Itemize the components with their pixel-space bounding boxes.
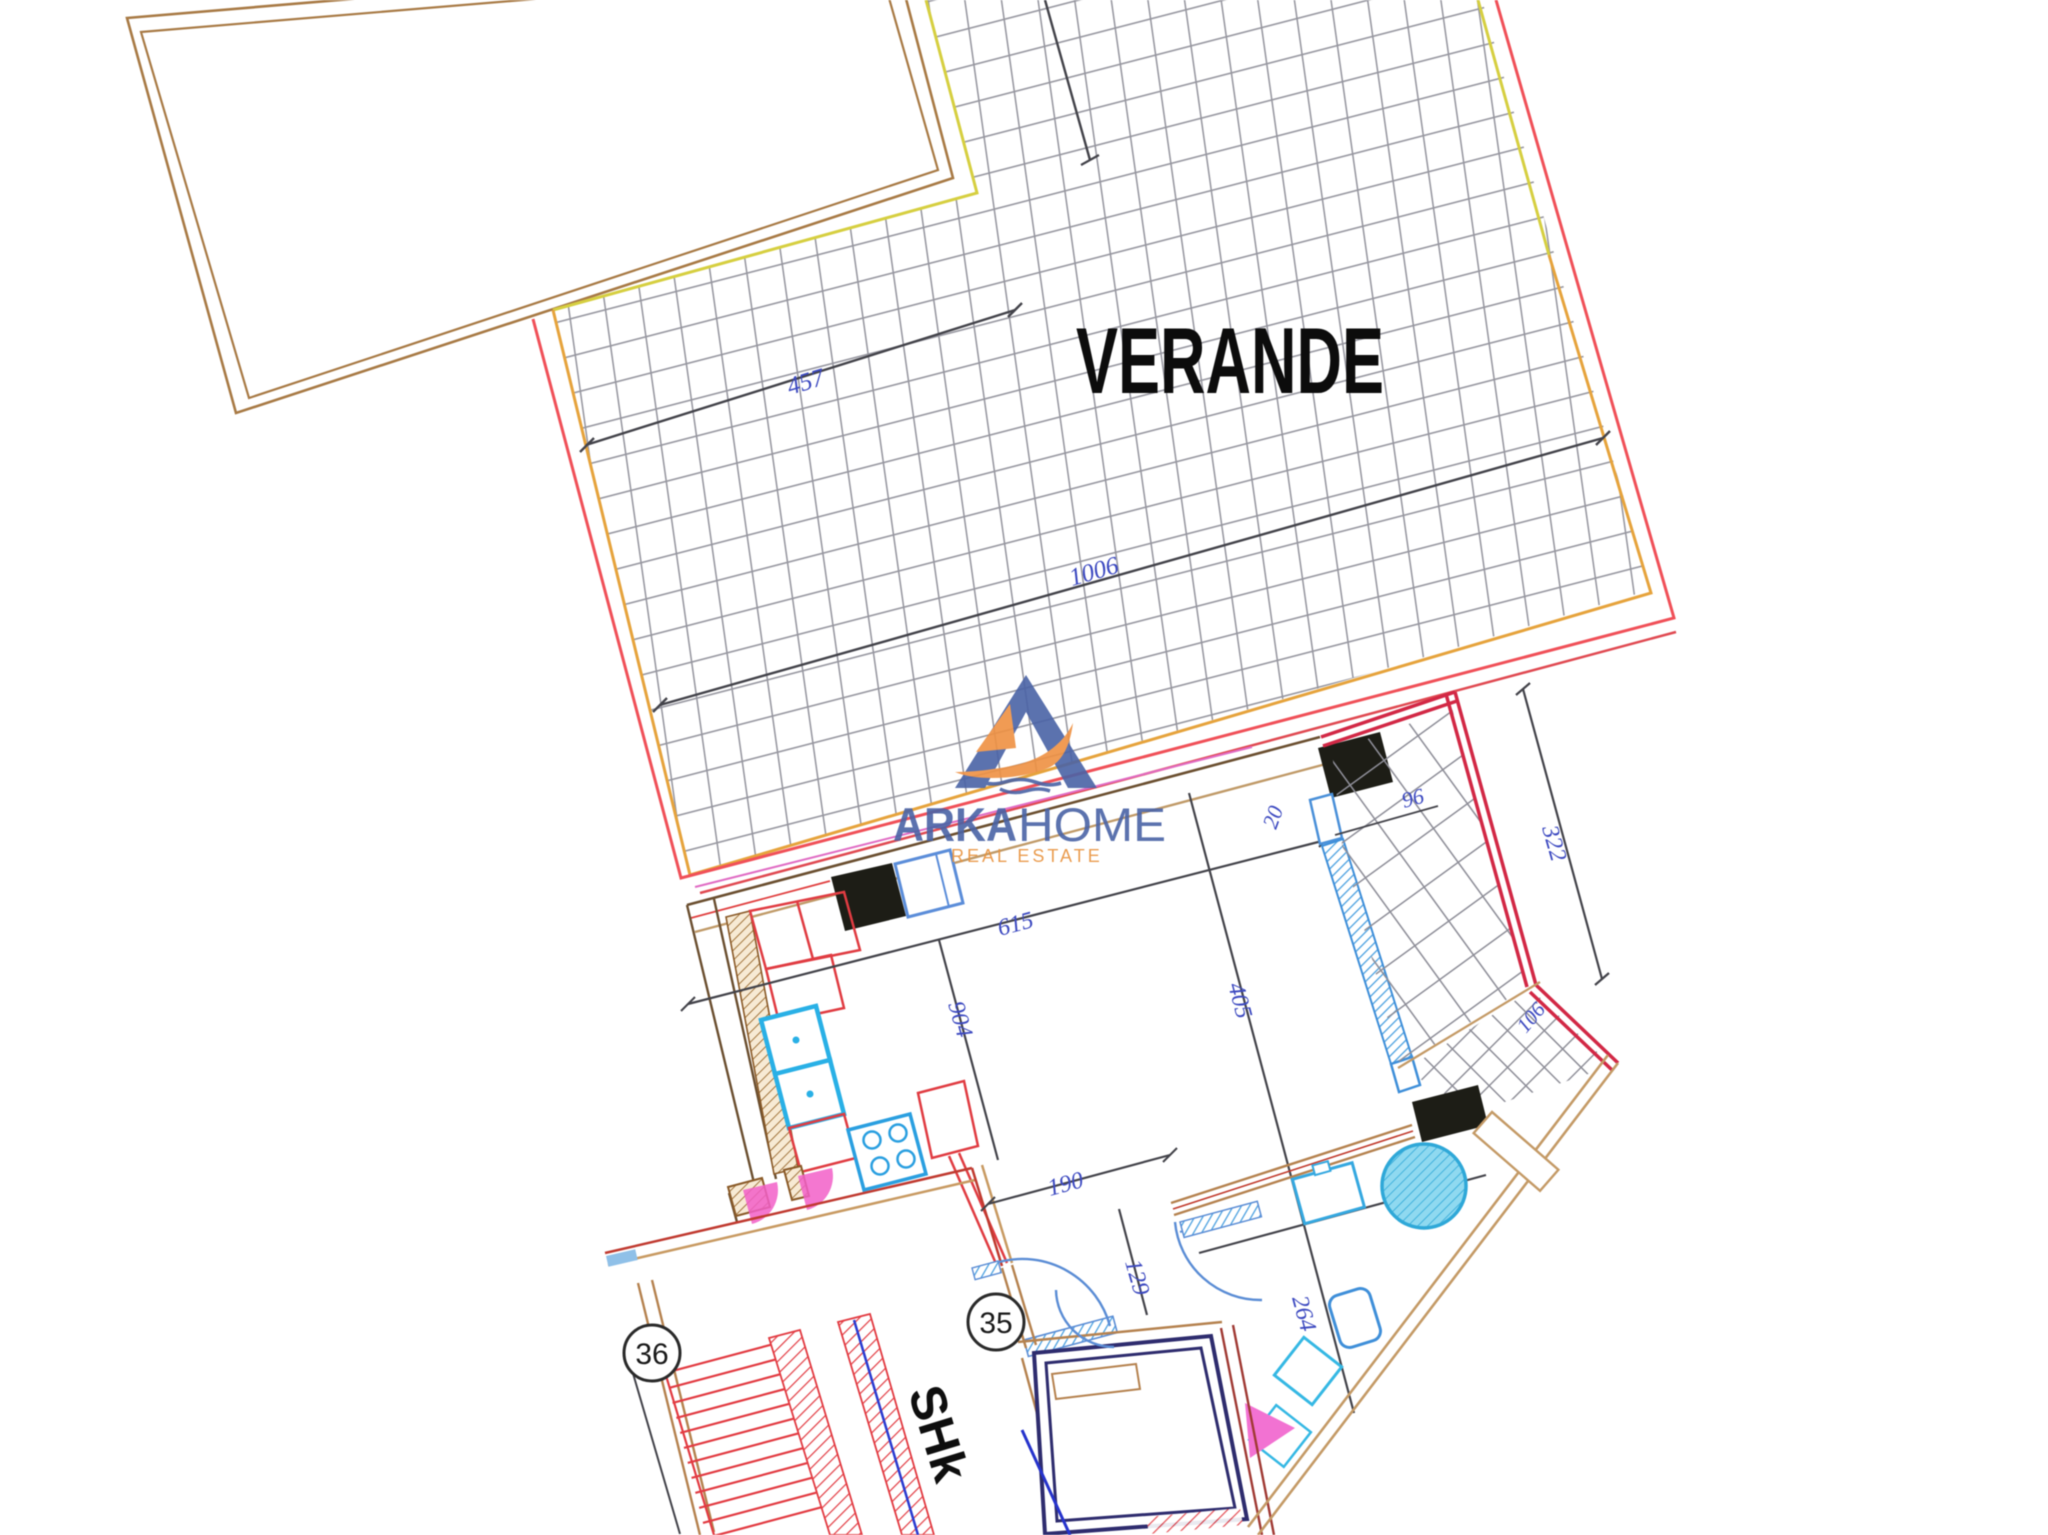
svg-text:ARKA: ARKA: [893, 798, 1017, 851]
svg-text:VERANDE: VERANDE: [1076, 308, 1384, 413]
svg-text:REAL ESTATE: REAL ESTATE: [951, 846, 1103, 866]
svg-text:36: 36: [635, 1338, 668, 1371]
svg-text:HOME: HOME: [1018, 798, 1166, 851]
svg-text:35: 35: [979, 1307, 1012, 1340]
